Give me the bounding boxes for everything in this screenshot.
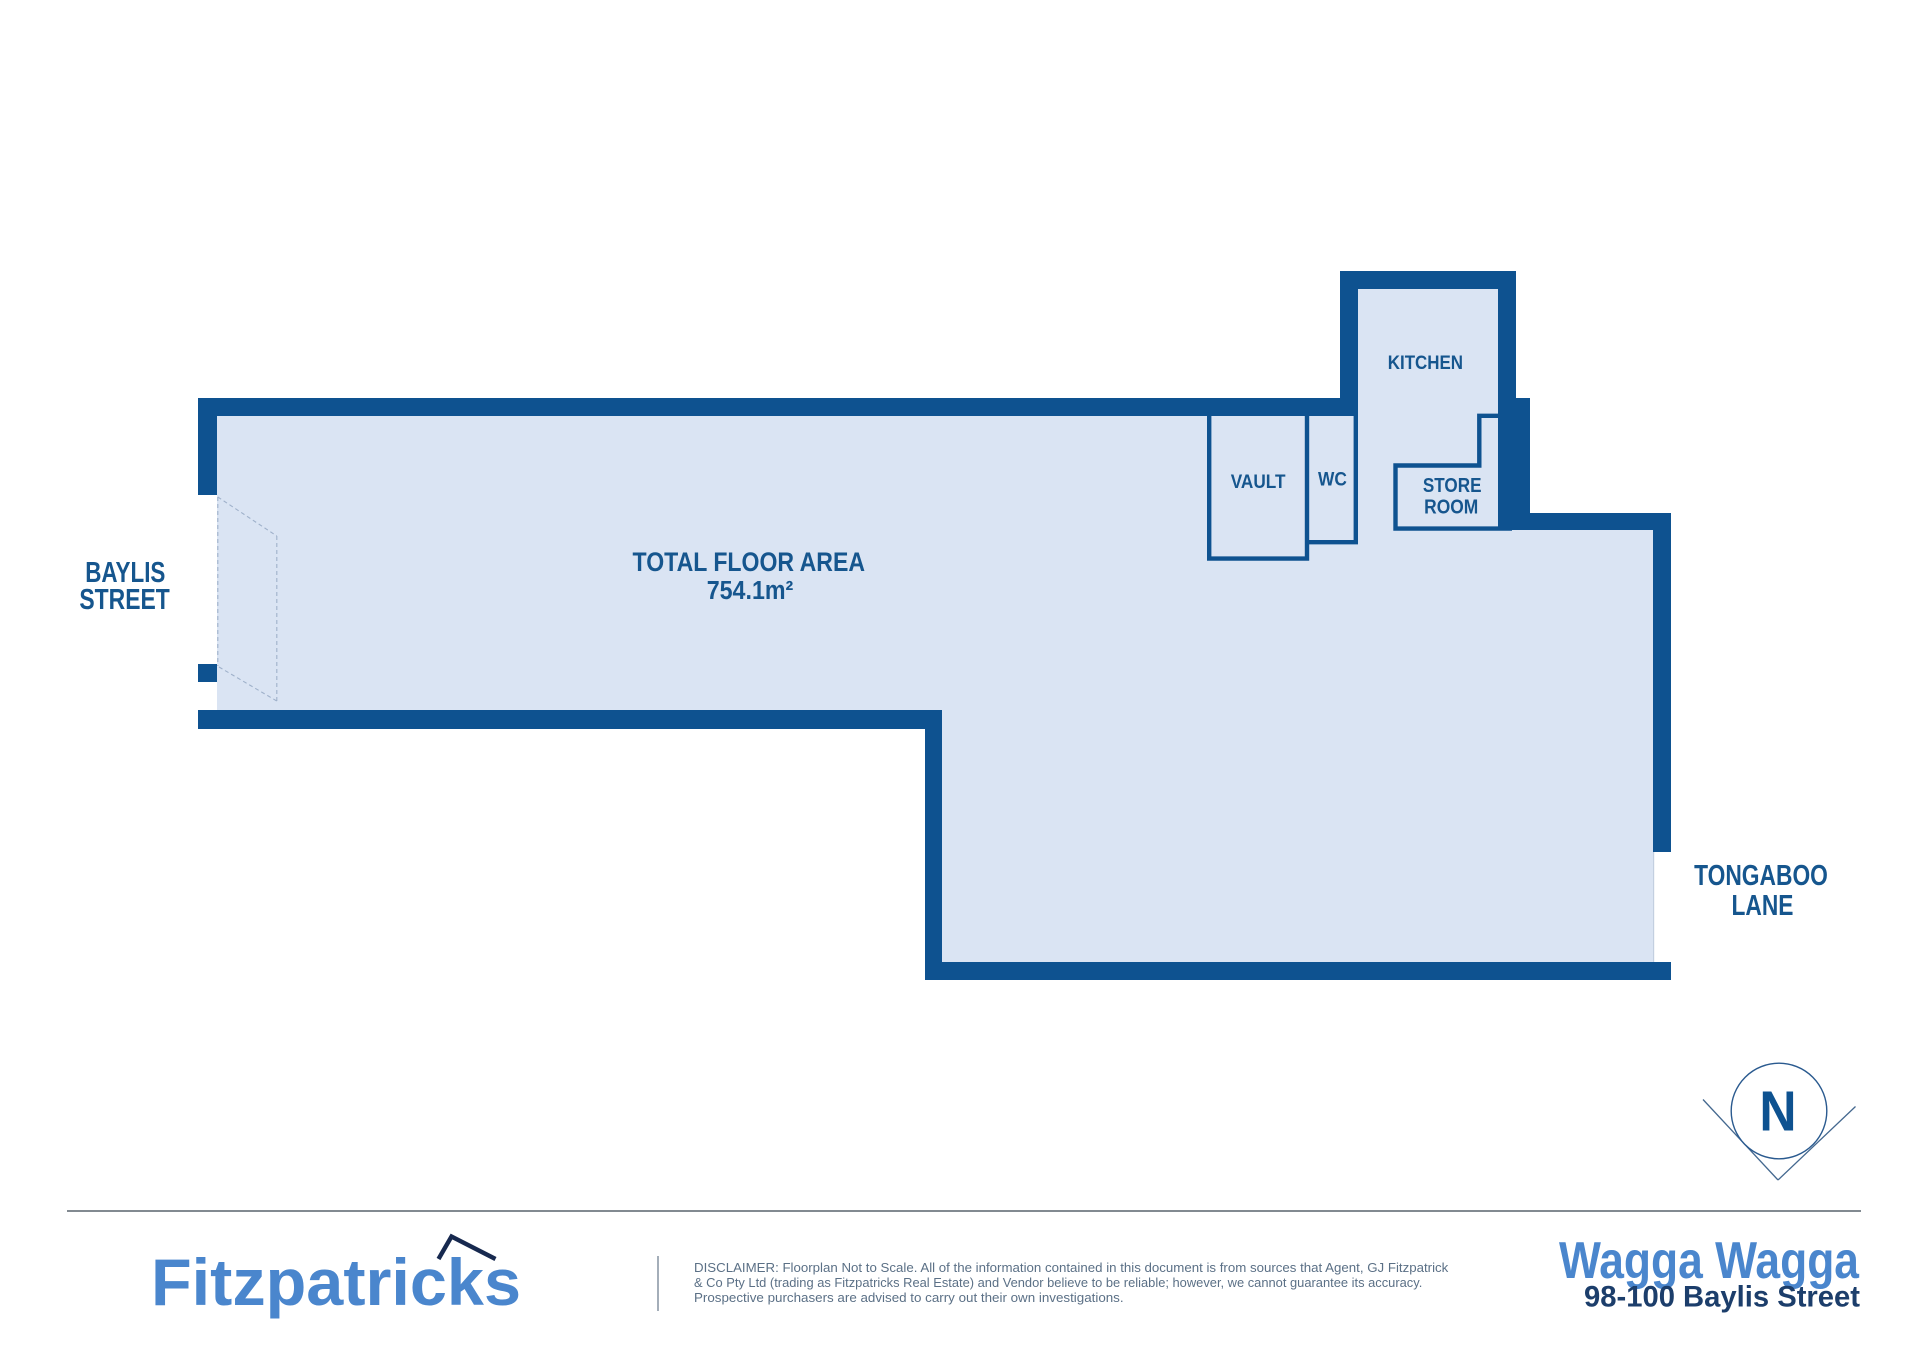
svg-text:VAULT: VAULT	[1231, 471, 1286, 493]
svg-text:TONGABOO: TONGABOO	[1694, 860, 1828, 892]
svg-text:N: N	[1759, 1079, 1796, 1143]
svg-text:Prospective purchasers are adv: Prospective purchasers are advised to ca…	[694, 1290, 1124, 1305]
svg-text:STREET: STREET	[79, 584, 170, 616]
svg-text:WC: WC	[1318, 469, 1347, 491]
svg-text:TOTAL FLOOR AREA: TOTAL FLOOR AREA	[633, 547, 866, 577]
svg-text:DISCLAIMER: Floorplan Not to S: DISCLAIMER: Floorplan Not to Scale. All …	[694, 1260, 1449, 1275]
svg-text:& Co Pty Ltd (trading as Fitzp: & Co Pty Ltd (trading as Fitzpatricks Re…	[694, 1275, 1422, 1290]
svg-text:98-100 Baylis Street: 98-100 Baylis Street	[1584, 1281, 1860, 1314]
svg-text:LANE: LANE	[1732, 890, 1794, 922]
svg-text:Fitzpatricks: Fitzpatricks	[151, 1245, 521, 1319]
svg-text:STORE: STORE	[1423, 475, 1482, 497]
svg-text:ROOM: ROOM	[1424, 497, 1478, 519]
svg-text:754.1m²: 754.1m²	[707, 577, 794, 605]
svg-text:KITCHEN: KITCHEN	[1388, 352, 1463, 374]
